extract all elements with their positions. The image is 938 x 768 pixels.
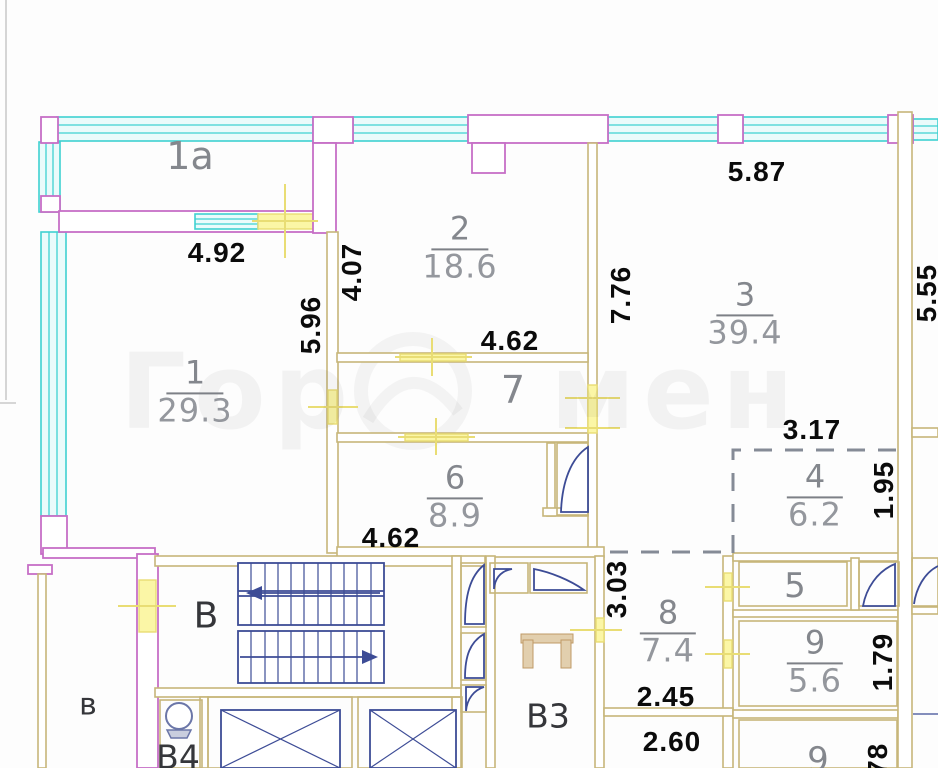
dimension-room2-left: 4.07 [336,243,368,302]
room-number: 2 [432,212,488,250]
dimension-room8-height: 3.03 [601,560,633,619]
room-4-label: 4 6.2 [787,460,843,531]
toilet-icon [166,703,192,738]
room-area: 39.4 [707,316,782,350]
room-number: 9 [787,626,843,664]
dimension-room4-width: 3.17 [783,414,842,446]
room-number: 6 [427,461,483,499]
room-area: 7.4 [641,634,695,668]
dimension-neighbor-height: 5.55 [911,264,938,323]
room-9b-label: 9 [807,740,829,768]
room-number: 1 [167,356,223,394]
room-7-label: 7 [501,368,525,412]
room-area: 29.3 [157,394,232,428]
room-3-label: 3 39.4 [707,278,782,349]
room-number: 8 [640,596,696,634]
dimension-room1-height: 5.96 [295,296,327,355]
room-area: 18.6 [422,250,497,284]
dimension-room3-width: 5.87 [728,156,787,188]
room-area: 8.9 [428,499,482,533]
dimension-room9b-height: 1.78 [862,743,894,768]
room-number: 3 [717,278,773,316]
room-9-label: 9 5.6 [787,626,843,697]
arch-opening [521,634,573,668]
dimension-room8-width: 2.45 [637,681,696,713]
staircase [238,563,384,683]
room-area: 6.2 [788,498,842,532]
room-5-label: 5 [784,566,806,606]
room-balcony-label: 1а [166,134,213,178]
page-border-line [0,0,16,403]
room-6-label: 6 8.9 [427,461,483,532]
room-area: 5.6 [788,664,842,698]
dimension-room6-width: 4.62 [362,522,421,554]
entry-label: в [79,688,97,723]
dimension-room2-width: 4.62 [481,325,540,357]
room-1-label: 1 29.3 [157,356,232,427]
room-8-label: 8 7.4 [640,596,696,667]
room-number: 4 [787,460,843,498]
dimension-balcony-width: 4.92 [188,237,247,269]
dashed-lines [610,450,898,553]
room-2-label: 2 18.6 [422,212,497,283]
stair-hall-label: В [194,596,219,637]
dimension-room3-height: 7.76 [605,266,637,325]
lobby-label: В3 [526,697,570,736]
dimension-room9-height: 1.79 [867,633,899,692]
dimension-room4-height: 1.95 [868,461,900,520]
floor-plan: .wP{fill:#ffffff;stroke:#c66fc6;stroke-w… [0,0,938,768]
elevator-shafts [221,710,456,768]
wc-label: В4 [156,738,200,768]
dimension-room8b-width: 2.60 [643,726,702,758]
